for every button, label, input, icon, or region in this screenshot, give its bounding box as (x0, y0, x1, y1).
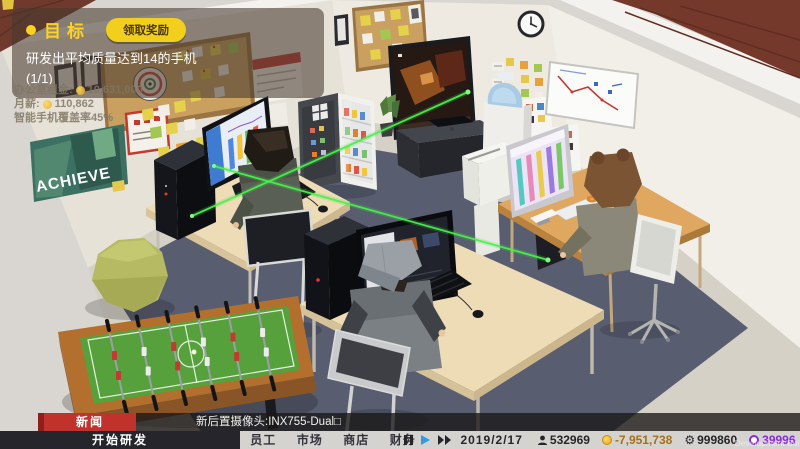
game-screen: ACHIEVE (0, 0, 800, 449)
goal-title: 目标 (44, 17, 90, 42)
coin-icon (602, 435, 612, 445)
stat-coverage: 智能手机覆盖率45% (14, 112, 143, 125)
rent-label: 办公室租金: (14, 84, 73, 97)
salary-value: 110,862 (55, 98, 94, 111)
research-counter: ⚙ 999860 (684, 433, 737, 447)
hud-stats: 办公室租金: 10,631,000 月薪: 110,862 智能手机覆盖率45% (14, 84, 143, 126)
stat-salary: 月薪: 110,862 (14, 98, 143, 111)
premium-coin-icon (749, 435, 759, 445)
person-icon (537, 435, 548, 446)
pause-button[interactable] (404, 435, 413, 445)
money-counter: -7,951,738 (602, 433, 672, 447)
claim-reward-button[interactable]: 领取奖励 (106, 18, 186, 42)
rent-value: 10,631,000 (88, 84, 143, 97)
bottom-toolbar: 开始研发 员工 市场 商店 财务 2019/2/17 532969 -7,951… (0, 431, 800, 449)
news-bar: 新闻 新后置摄像头:INX755-Dual□ (38, 413, 800, 431)
premium-counter: 39996 (749, 433, 795, 447)
stat-rent: 办公室租金: 10,631,000 (14, 84, 143, 97)
play-button[interactable] (421, 435, 430, 445)
wall-clock (519, 12, 543, 36)
news-ticker-text: 新后置摄像头:INX755-Dual□ (196, 413, 341, 431)
nav-tabs: 员工 市场 商店 财务 (240, 431, 426, 449)
tab-shop[interactable]: 商店 (343, 431, 369, 449)
coin-icon (76, 86, 85, 95)
gear-icon: ⚙ (684, 433, 695, 447)
coin-icon (43, 100, 52, 109)
start-research-button[interactable]: 开始研发 (0, 431, 240, 449)
tab-market[interactable]: 市场 (297, 431, 323, 449)
salary-label: 月薪: (14, 98, 40, 111)
news-label: 新闻 (44, 413, 136, 431)
fast-forward-button[interactable] (438, 435, 452, 445)
goal-description: 研发出平均质量达到14的手机 (1/1) (26, 49, 222, 88)
game-date: 2019/2/17 (461, 433, 523, 447)
status-strip: 2019/2/17 532969 -7,951,738 ⚙ 999860 399… (404, 431, 800, 449)
tab-staff[interactable]: 员工 (250, 431, 276, 449)
fans-counter: 532969 (537, 433, 590, 447)
goal-dot-icon (26, 25, 36, 35)
coverage-label: 智能手机覆盖率45% (14, 112, 113, 125)
